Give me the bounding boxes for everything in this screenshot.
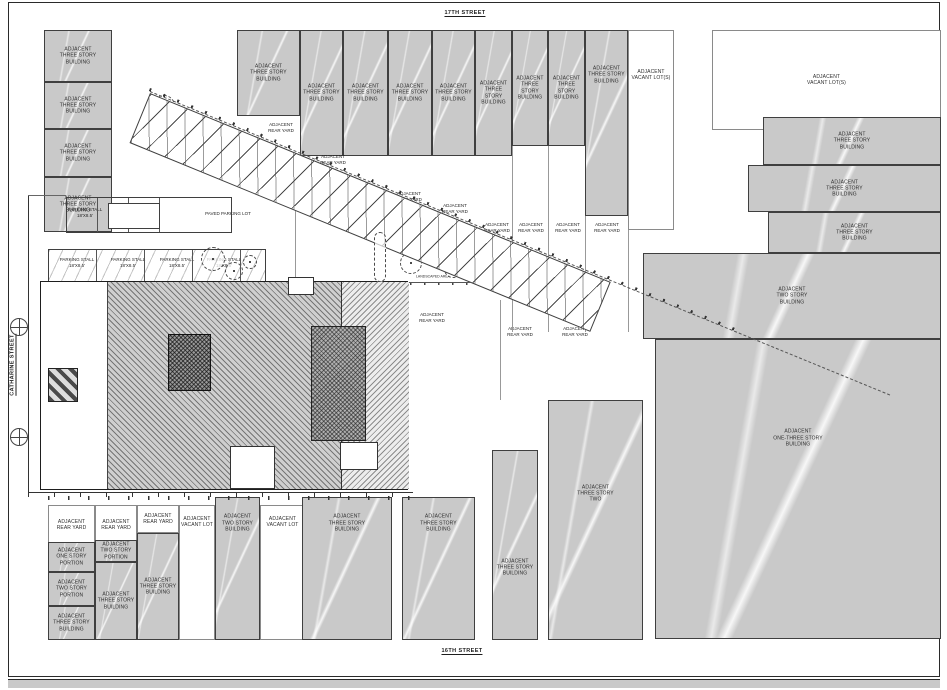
parcel-label: ADJACENT THREE STORY BUILDING (138, 577, 178, 596)
parcel-label: ADJACENT THREE STORY BUILDING (49, 614, 94, 633)
annotation-label: ADJACENT REAR YARD (518, 222, 544, 234)
parcel-label: ADJACENT THREE STORY BUILDING (303, 514, 391, 533)
parcel-label: ADJACENT VACANT LOT (180, 516, 214, 529)
parcel-label: ADJACENT THREE STORY BUILDING (749, 179, 940, 198)
parcel-label: ADJACENT REAR YARD (96, 519, 136, 532)
parcel-label: ADJACENT THREE STORY BUILDING (764, 132, 940, 151)
parcel: ADJACENT THREE STORY BUILDING (44, 129, 112, 177)
parcel: ADJACENT TWO STORY BUILDING (643, 253, 941, 339)
parcel-label: ADJACENT REAR YARD (49, 519, 94, 532)
annotation-label: ADJACENT REAR YARD (507, 326, 533, 338)
roof-access-box (340, 442, 378, 470)
parcel-label: ADJACENT THREE STORY BUILDING (344, 84, 387, 103)
parcel-label: ADJACENT THREE STORY BUILDING (45, 47, 111, 66)
annotation-label: ADJACENT REAR YARD (268, 122, 294, 134)
street-label-16th: 16TH STREET (441, 648, 482, 655)
parcel-label: ADJACENT TWO STORY BUILDING (216, 514, 259, 533)
parcel-label: ADJACENT THREE STORY BUILDING (301, 84, 342, 103)
recessed-portion-stripes (48, 368, 78, 402)
parcel-label: ADJACENT VACANT LOT(S) (629, 68, 673, 81)
south-boundary-ticks (48, 496, 416, 500)
parking-row-south (48, 249, 266, 285)
parcel: ADJACENT THREE STORY BUILDING (475, 30, 512, 156)
parcel-label: ADJACENT THREE STORY BUILDING (769, 223, 940, 242)
parcel-label: ADJACENT THREE STORY BUILDING (238, 64, 299, 83)
parcel: ADJACENT THREE STORY BUILDING (402, 497, 475, 640)
parcel: ADJACENT VACANT LOT (179, 505, 215, 640)
parcel: ADJACENT TWO STORY PORTION (48, 572, 95, 606)
parcel-label: ADJACENT THREE STORY BUILDING (433, 84, 474, 103)
parcel-label: ADJACENT THREE STORY BUILDING (586, 66, 627, 85)
parcel: ADJACENT VACANT LOT(S) (712, 30, 941, 130)
parcel: ADJACENT THREE STORY BUILDING (302, 497, 392, 640)
parcel-label: ADJACENT THREE STORY BUILDING (493, 558, 537, 577)
parcel: ADJACENT THREE STORY BUILDING (512, 30, 548, 146)
parcel: ADJACENT THREE STORY BUILDING (44, 30, 112, 82)
annotation-label: ADJACENT REAR YARD (419, 312, 445, 324)
parcel: ADJACENT THREE STORY BUILDING (44, 82, 112, 129)
parcel: ADJACENT THREE STORY BUILDING (343, 30, 388, 156)
parcel: ADJACENT THREE STORY BUILDING (768, 212, 941, 253)
parcel: ADJACENT THREE STORY BUILDING (492, 450, 538, 640)
parcel: ADJACENT REAR YARD (95, 505, 137, 545)
lot-line (500, 300, 501, 400)
parcel-label: ADJACENT TWO STORY PORTION (49, 580, 94, 599)
parcel: ADJACENT TWO STORY BUILDING (215, 497, 260, 640)
parcel-label: ADJACENT ONE STORY PORTION (49, 548, 94, 567)
annotation-label: LANDSCAPED AREA (416, 275, 450, 280)
parcel-label: ADJACENT THREE STORY BUILDING (549, 76, 584, 101)
parcel: ADJACENT REAR YARD (48, 505, 95, 545)
parcel: ADJACENT THREE STORY TWO (548, 400, 643, 640)
annotation-label: ADJACENT REAR YARD (594, 222, 620, 234)
parcel-label: ADJACENT THREE STORY BUILDING (45, 144, 111, 163)
parcel: ADJACENT THREE STORY BUILDING (388, 30, 432, 156)
parcel-label: ADJACENT ONE-THREE STORY BUILDING (656, 429, 940, 448)
parcel-label: ADJACENT VACANT LOT (261, 516, 304, 529)
parcel: ADJACENT THREE STORY BUILDING (548, 30, 585, 146)
roof-structure-crosshatch (168, 334, 211, 391)
hedge-icon (374, 232, 386, 282)
parcel-label: ADJACENT THREE STORY BUILDING (403, 514, 474, 533)
parcel-label: ADJACENT TWO STORY BUILDING (644, 287, 940, 306)
parcel-label: ADJACENT TWO STORY PORTION (96, 542, 136, 561)
parcel: ADJACENT THREE STORY BUILDING (585, 30, 628, 216)
parcel: ADJACENT THREE STORY BUILDING (748, 165, 941, 212)
parcel-label: ADJACENT THREE STORY BUILDING (389, 84, 431, 103)
parcel: ADJACENT THREE STORY BUILDING (48, 606, 95, 640)
site-west-boundary-line (28, 195, 29, 495)
parcel: ADJACENT VACANT LOT(S) (628, 30, 674, 230)
proposed-portion-hatch (108, 282, 341, 489)
parcel: ADJACENT TWO STORY PORTION (95, 540, 137, 562)
parcel: ADJACENT THREE STORY BUILDING (763, 117, 941, 165)
parcel: ADJACENT VACANT LOT (260, 505, 305, 640)
parcel-label: ADJACENT REAR YARD (138, 513, 178, 526)
parcel-label: ADJACENT THREE STORY BUILDING (476, 81, 511, 106)
manhole-icon (10, 428, 28, 446)
parcel: ADJACENT THREE STORY BUILDING (300, 30, 343, 156)
parcel: ADJACENT REAR YARD (137, 505, 179, 533)
parcel-label: ADJACENT THREE STORY BUILDING (96, 592, 136, 611)
manhole-icon (10, 318, 28, 336)
parcel: ADJACENT THREE STORY BUILDING (95, 562, 137, 640)
parcel-label: ADJACENT THREE STORY TWO (549, 484, 642, 503)
parcel-label: ADJACENT THREE STORY BUILDING (45, 96, 111, 115)
sheet-bottom-band (8, 679, 940, 688)
lot-line (628, 230, 629, 332)
reservoir-space-box (108, 203, 160, 229)
parcel-label: ADJACENT VACANT LOT(S) (713, 74, 940, 87)
parcel: ADJACENT THREE STORY BUILDING (137, 533, 179, 640)
roof-access-box (288, 277, 314, 295)
site-north-line (28, 195, 66, 196)
building-notch (230, 446, 275, 489)
parcel: ADJACENT THREE STORY BUILDING (432, 30, 475, 156)
roof-structure-crosshatch (311, 326, 366, 441)
parcel: ADJACENT ONE STORY PORTION (48, 542, 95, 572)
parcel: ADJACENT ONE-THREE STORY BUILDING (655, 339, 941, 639)
street-label-catharine: CATHARINE STREET (10, 334, 17, 396)
parcel-label: ADJACENT THREE STORY BUILDING (513, 76, 547, 101)
annotation-label: ADJACENT REAR YARD (555, 222, 581, 234)
street-label-17th: 17TH STREET (444, 10, 485, 17)
parcel: ADJACENT THREE STORY BUILDING (237, 30, 300, 116)
